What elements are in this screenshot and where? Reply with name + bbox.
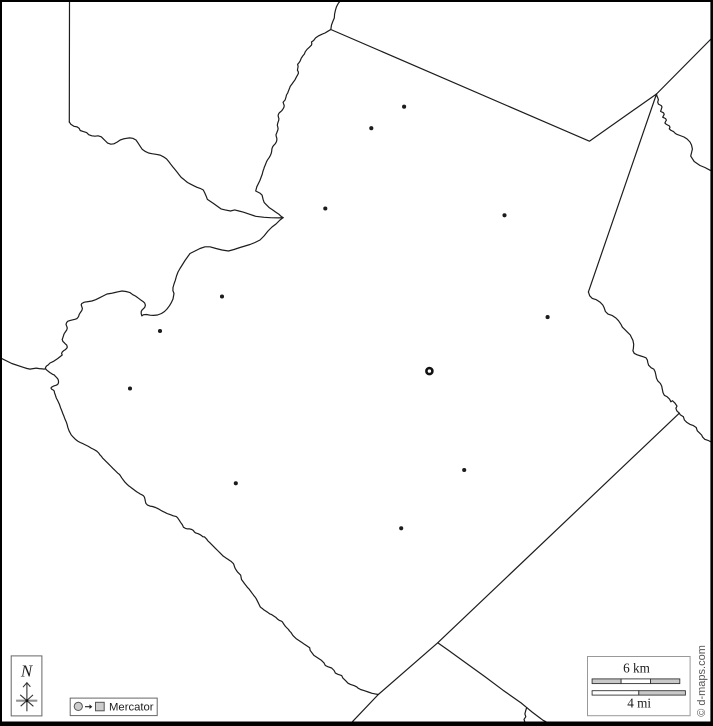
svg-text:© d-maps.com: © d-maps.com: [696, 645, 708, 717]
svg-text:Mercator: Mercator: [109, 702, 154, 714]
svg-text:N: N: [20, 662, 34, 681]
svg-text:4 mi: 4 mi: [627, 696, 651, 711]
svg-text:6 km: 6 km: [623, 660, 650, 675]
